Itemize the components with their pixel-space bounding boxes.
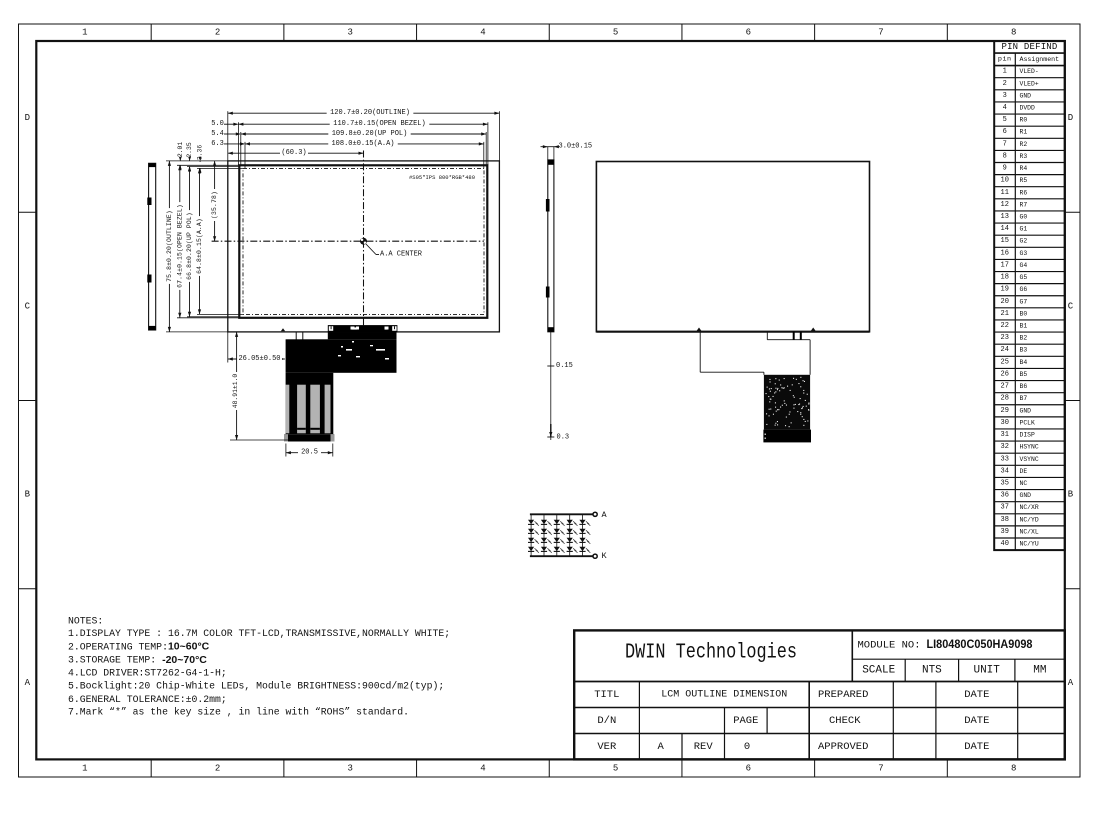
svg-text:5: 5 bbox=[1003, 116, 1007, 124]
svg-text:35: 35 bbox=[1001, 479, 1009, 487]
svg-text:26: 26 bbox=[1001, 370, 1009, 378]
svg-text:29: 29 bbox=[1001, 407, 1009, 415]
svg-text:5: 5 bbox=[613, 764, 618, 774]
svg-text:PIN DEFIND: PIN DEFIND bbox=[1001, 42, 1057, 52]
svg-text:pin: pin bbox=[998, 55, 1012, 63]
svg-text:DE: DE bbox=[1020, 468, 1028, 475]
svg-text:R4: R4 bbox=[1020, 165, 1028, 172]
svg-text:MODULE NO:: MODULE NO: bbox=[858, 639, 921, 651]
svg-text:38: 38 bbox=[1001, 516, 1009, 524]
svg-text:G3: G3 bbox=[1020, 250, 1028, 257]
svg-text:(60.3): (60.3) bbox=[281, 149, 306, 157]
svg-text:LI80480C050HA9098: LI80480C050HA9098 bbox=[927, 639, 1034, 651]
svg-text:67.4±0.15(OPEN BEZEL): 67.4±0.15(OPEN BEZEL) bbox=[176, 204, 183, 288]
svg-text:2.01: 2.01 bbox=[177, 142, 184, 158]
svg-text:DISP: DISP bbox=[1020, 432, 1036, 439]
svg-text:0.3: 0.3 bbox=[557, 434, 570, 442]
svg-text:19: 19 bbox=[1001, 286, 1009, 294]
svg-text:16: 16 bbox=[1001, 249, 1009, 257]
svg-text:9: 9 bbox=[1003, 165, 1007, 173]
svg-text:NC: NC bbox=[1020, 480, 1028, 487]
svg-text:11: 11 bbox=[1001, 189, 1009, 197]
svg-text:14: 14 bbox=[1001, 225, 1009, 233]
svg-text:6: 6 bbox=[746, 764, 751, 774]
svg-text:C: C bbox=[1068, 301, 1074, 311]
svg-text:10~60°C: 10~60°C bbox=[168, 641, 210, 653]
svg-text:(35.78): (35.78) bbox=[211, 191, 218, 219]
svg-text:D/N: D/N bbox=[597, 715, 616, 727]
svg-text:2.OPERATING TEMP:: 2.OPERATING TEMP: bbox=[68, 641, 168, 652]
svg-text:1.DISPLAY TYPE : 16.7M COLOR T: 1.DISPLAY TYPE : 16.7M COLOR TFT-LCD,TRA… bbox=[68, 628, 450, 639]
svg-text:A: A bbox=[25, 678, 31, 688]
svg-text:40: 40 bbox=[1001, 540, 1009, 548]
svg-text:A.A CENTER: A.A CENTER bbox=[380, 251, 423, 259]
svg-text:0.15: 0.15 bbox=[556, 362, 573, 370]
svg-text:20.5: 20.5 bbox=[301, 449, 318, 457]
svg-text:5.Bocklight:20 Chip-White LEDs: 5.Bocklight:20 Chip-White LEDs, Module B… bbox=[68, 681, 444, 692]
svg-text:VLED+: VLED+ bbox=[1020, 80, 1039, 87]
svg-text:VER: VER bbox=[597, 741, 617, 753]
svg-text:B: B bbox=[25, 490, 31, 500]
svg-text:17: 17 bbox=[1001, 261, 1009, 269]
svg-text:C: C bbox=[25, 301, 31, 311]
svg-text:PAGE: PAGE bbox=[733, 715, 758, 727]
svg-text:8: 8 bbox=[1011, 28, 1016, 38]
svg-text:A: A bbox=[1068, 678, 1074, 688]
svg-text:G5: G5 bbox=[1020, 274, 1028, 281]
svg-text:NTS: NTS bbox=[922, 665, 942, 677]
svg-text:DATE: DATE bbox=[964, 715, 989, 727]
svg-text:3: 3 bbox=[1003, 92, 1007, 100]
svg-text:R7: R7 bbox=[1020, 201, 1028, 208]
svg-text:5.0: 5.0 bbox=[211, 120, 224, 128]
svg-text:DATE: DATE bbox=[964, 741, 989, 753]
svg-text:1: 1 bbox=[82, 28, 87, 38]
svg-text:D: D bbox=[25, 113, 30, 123]
svg-text:21: 21 bbox=[1001, 310, 1009, 318]
svg-text:B3: B3 bbox=[1020, 347, 1028, 354]
svg-text:2: 2 bbox=[1003, 80, 1007, 88]
svg-text:GND: GND bbox=[1020, 407, 1032, 414]
svg-text:4.LCD DRIVER:ST7262-G4-1-H;: 4.LCD DRIVER:ST7262-G4-1-H; bbox=[68, 668, 227, 679]
svg-text:APPROVED: APPROVED bbox=[818, 741, 868, 753]
svg-text:R6: R6 bbox=[1020, 189, 1028, 196]
svg-text:R1: R1 bbox=[1020, 129, 1028, 136]
svg-text:MM: MM bbox=[1033, 665, 1046, 677]
svg-text:120.7±0.20(OUTLINE): 120.7±0.20(OUTLINE) bbox=[330, 109, 410, 117]
svg-text:7: 7 bbox=[878, 764, 883, 774]
svg-text:GND: GND bbox=[1020, 92, 1032, 99]
svg-text:6.3: 6.3 bbox=[211, 140, 224, 148]
svg-text:1: 1 bbox=[82, 764, 87, 774]
svg-text:A: A bbox=[658, 741, 665, 753]
svg-text:7.Mark “*” as the key size , i: 7.Mark “*” as the key size , in line wit… bbox=[68, 707, 409, 718]
svg-text:8: 8 bbox=[1011, 764, 1016, 774]
svg-text:HSYNC: HSYNC bbox=[1020, 444, 1039, 451]
svg-text:110.7±0.15(OPEN BEZEL): 110.7±0.15(OPEN BEZEL) bbox=[333, 120, 425, 128]
svg-text:31: 31 bbox=[1001, 431, 1009, 439]
svg-text:6.GENERAL TOLERANCE:±0.2mm;: 6.GENERAL TOLERANCE:±0.2mm; bbox=[68, 694, 227, 705]
svg-text:27: 27 bbox=[1001, 383, 1009, 391]
svg-text:2: 2 bbox=[215, 28, 220, 38]
svg-text:2: 2 bbox=[215, 764, 220, 774]
svg-text:NC/XR: NC/XR bbox=[1020, 504, 1039, 511]
svg-text:NC/YD: NC/YD bbox=[1020, 516, 1039, 523]
svg-text:R3: R3 bbox=[1020, 153, 1028, 160]
svg-text:66.8±0.20(UP POL): 66.8±0.20(UP POL) bbox=[186, 212, 193, 280]
svg-text:23: 23 bbox=[1001, 334, 1009, 342]
svg-text:20: 20 bbox=[1001, 298, 1009, 306]
svg-text:5.4: 5.4 bbox=[211, 130, 224, 138]
svg-text:6: 6 bbox=[746, 28, 751, 38]
svg-text:8: 8 bbox=[1003, 152, 1007, 160]
svg-text:D: D bbox=[1068, 113, 1073, 123]
svg-text:33: 33 bbox=[1001, 455, 1009, 463]
svg-text:4: 4 bbox=[1003, 104, 1007, 112]
svg-text:13: 13 bbox=[1001, 213, 1009, 221]
svg-text:G4: G4 bbox=[1020, 262, 1028, 269]
svg-text:3: 3 bbox=[348, 28, 353, 38]
svg-text:75.8±0.20(OUTLINE): 75.8±0.20(OUTLINE) bbox=[166, 210, 173, 282]
svg-text:PREPARED: PREPARED bbox=[818, 689, 868, 701]
svg-text:B1: B1 bbox=[1020, 323, 1028, 330]
svg-text:G1: G1 bbox=[1020, 226, 1028, 233]
svg-text:24: 24 bbox=[1001, 346, 1009, 354]
svg-text:B2: B2 bbox=[1020, 335, 1028, 342]
svg-text:NC/YU: NC/YU bbox=[1020, 541, 1039, 548]
svg-text:5: 5 bbox=[613, 28, 618, 38]
svg-text:TITL: TITL bbox=[594, 689, 619, 701]
svg-text:32: 32 bbox=[1001, 443, 1009, 451]
svg-text:B7: B7 bbox=[1020, 395, 1028, 402]
svg-text:REV: REV bbox=[694, 741, 714, 753]
svg-text:30: 30 bbox=[1001, 419, 1009, 427]
svg-text:NC/XL: NC/XL bbox=[1020, 528, 1039, 535]
svg-text:12: 12 bbox=[1001, 201, 1009, 209]
svg-text:B0: B0 bbox=[1020, 310, 1028, 317]
svg-text:37: 37 bbox=[1001, 504, 1009, 512]
svg-text:39: 39 bbox=[1001, 528, 1009, 536]
svg-text:0: 0 bbox=[744, 741, 750, 753]
svg-text:UNIT: UNIT bbox=[973, 665, 1000, 677]
svg-text:GND: GND bbox=[1020, 492, 1032, 499]
svg-text:3.STORAGE TEMP:: 3.STORAGE TEMP: bbox=[68, 655, 156, 666]
svg-text:6: 6 bbox=[1003, 128, 1007, 136]
svg-text:4: 4 bbox=[480, 764, 485, 774]
svg-text:B6: B6 bbox=[1020, 383, 1028, 390]
svg-text:B4: B4 bbox=[1020, 359, 1028, 366]
svg-text:#S05″IPS 800*RGB*480: #S05″IPS 800*RGB*480 bbox=[409, 174, 475, 181]
svg-text:1: 1 bbox=[1003, 68, 1007, 76]
svg-text:LCM OUTLINE DIMENSION: LCM OUTLINE DIMENSION bbox=[661, 689, 787, 700]
svg-text:CHECK: CHECK bbox=[829, 715, 861, 727]
svg-text:DATE: DATE bbox=[964, 689, 989, 701]
svg-text:R2: R2 bbox=[1020, 141, 1028, 148]
svg-text:SCALE: SCALE bbox=[862, 665, 895, 677]
svg-text:-20~70°C: -20~70°C bbox=[162, 654, 207, 666]
svg-text:R5: R5 bbox=[1020, 177, 1028, 184]
svg-text:10: 10 bbox=[1001, 177, 1009, 185]
svg-text:B: B bbox=[1068, 490, 1074, 500]
svg-text:NOTES:: NOTES: bbox=[68, 615, 103, 626]
svg-text:34: 34 bbox=[1001, 467, 1009, 475]
svg-text:K: K bbox=[602, 551, 608, 561]
svg-text:7: 7 bbox=[878, 28, 883, 38]
svg-text:G0: G0 bbox=[1020, 214, 1028, 221]
svg-text:15: 15 bbox=[1001, 237, 1009, 245]
svg-text:G2: G2 bbox=[1020, 238, 1028, 245]
svg-text:28: 28 bbox=[1001, 395, 1009, 403]
svg-text:48.91±1.0: 48.91±1.0 bbox=[232, 374, 239, 409]
svg-text:DWIN Technologies: DWIN Technologies bbox=[625, 641, 797, 665]
svg-text:Assignment: Assignment bbox=[1020, 56, 1060, 63]
svg-text:109.8±0.20(UP POL): 109.8±0.20(UP POL) bbox=[332, 130, 408, 138]
svg-text:2.35: 2.35 bbox=[186, 142, 193, 158]
svg-text:22: 22 bbox=[1001, 322, 1009, 330]
svg-text:3.0±0.15: 3.0±0.15 bbox=[559, 142, 593, 150]
svg-text:26.05±0.50: 26.05±0.50 bbox=[238, 355, 280, 363]
svg-text:G7: G7 bbox=[1020, 298, 1028, 305]
svg-text:25: 25 bbox=[1001, 358, 1009, 366]
svg-text:VLED-: VLED- bbox=[1020, 68, 1039, 75]
svg-text:18: 18 bbox=[1001, 274, 1009, 282]
svg-text:DVDD: DVDD bbox=[1020, 104, 1036, 111]
svg-text:A: A bbox=[602, 510, 608, 520]
svg-text:4: 4 bbox=[480, 28, 485, 38]
svg-text:64.8±0.15(A.A): 64.8±0.15(A.A) bbox=[196, 218, 203, 274]
svg-text:PCLK: PCLK bbox=[1020, 419, 1036, 426]
svg-text:VSYNC: VSYNC bbox=[1020, 456, 1039, 463]
svg-text:3: 3 bbox=[348, 764, 353, 774]
svg-text:36: 36 bbox=[1001, 492, 1009, 500]
svg-text:7: 7 bbox=[1003, 140, 1007, 148]
svg-text:B5: B5 bbox=[1020, 371, 1028, 378]
svg-text:108.0±0.15(A.A): 108.0±0.15(A.A) bbox=[331, 140, 394, 148]
svg-text:G6: G6 bbox=[1020, 286, 1028, 293]
svg-text:R0: R0 bbox=[1020, 117, 1028, 124]
